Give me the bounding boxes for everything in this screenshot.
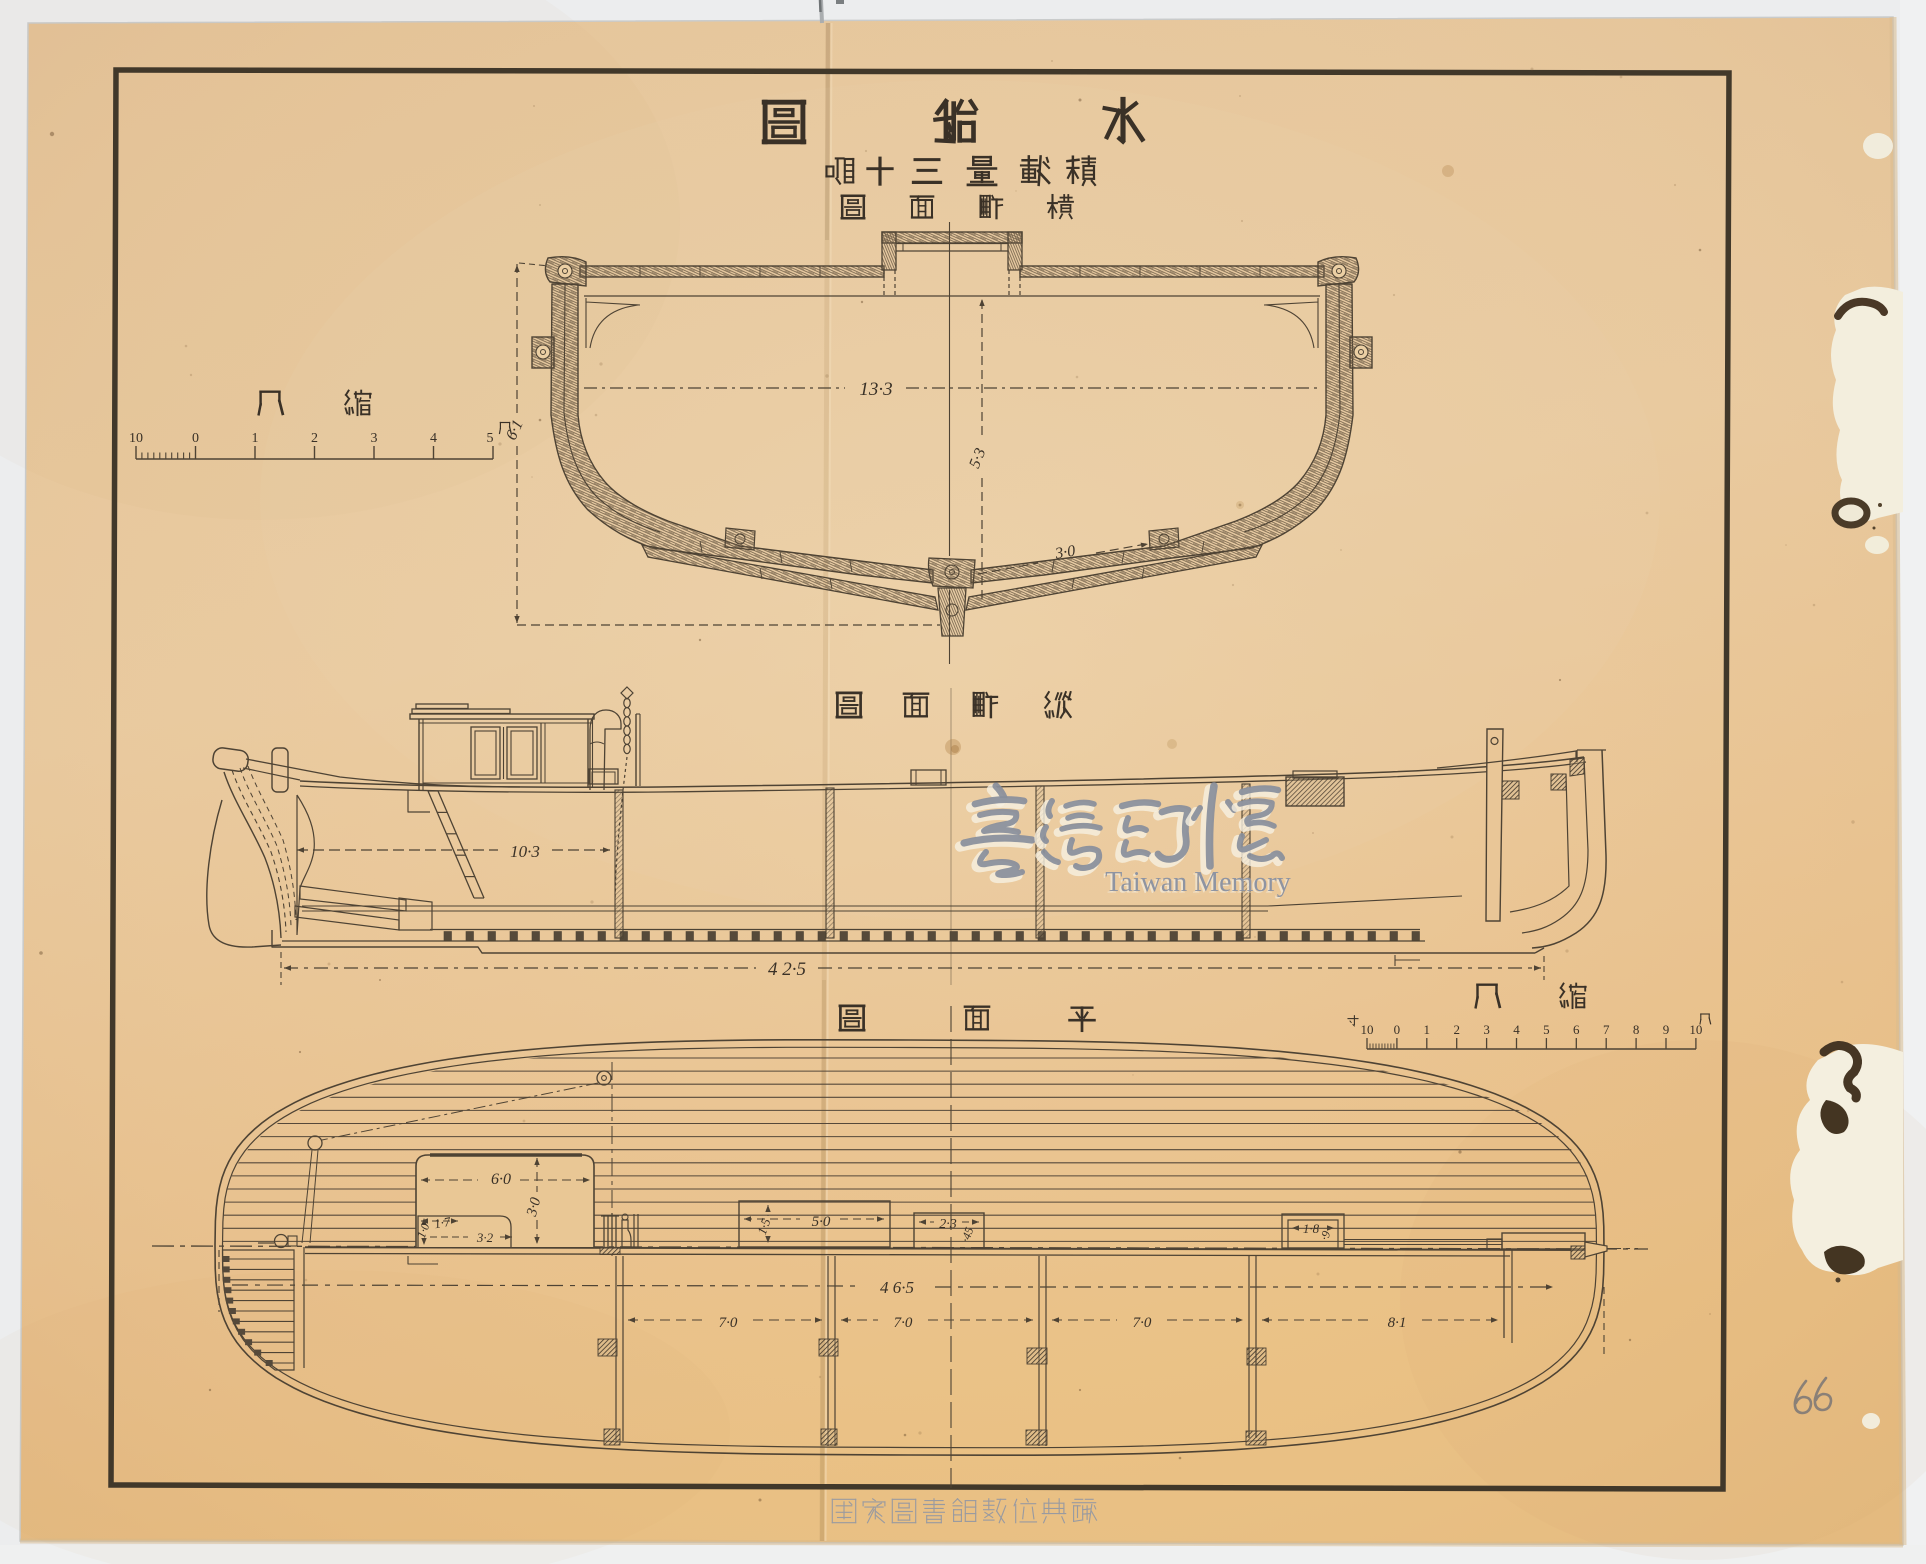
svg-text:3·0: 3·0 — [1053, 543, 1076, 563]
svg-text:4: 4 — [1513, 1022, 1520, 1037]
svg-text:3: 3 — [371, 431, 378, 446]
svg-text:10: 10 — [129, 431, 143, 446]
svg-text:2: 2 — [1453, 1022, 1460, 1037]
svg-text:4: 4 — [430, 431, 437, 446]
svg-text:3: 3 — [1483, 1022, 1490, 1037]
svg-text:7·0: 7·0 — [719, 1315, 738, 1331]
svg-text:8: 8 — [1633, 1022, 1640, 1037]
svg-text:0: 0 — [192, 431, 199, 446]
svg-text:6: 6 — [1573, 1022, 1580, 1037]
svg-text:5·0: 5·0 — [812, 1214, 831, 1230]
svg-text:9: 9 — [1663, 1022, 1670, 1037]
svg-text:2·3: 2·3 — [939, 1217, 957, 1232]
svg-text:5: 5 — [1543, 1022, 1550, 1037]
svg-text:2: 2 — [311, 431, 318, 446]
svg-text:1·8: 1·8 — [1303, 1221, 1320, 1236]
svg-text:8·1: 8·1 — [1388, 1315, 1407, 1331]
svg-text:3·2: 3·2 — [476, 1230, 494, 1245]
svg-text:6·0: 6·0 — [491, 1171, 511, 1188]
svg-text:7: 7 — [1603, 1022, 1610, 1037]
svg-text:Taiwan Memory: Taiwan Memory — [1105, 867, 1290, 898]
svg-text:7·0: 7·0 — [1133, 1315, 1152, 1331]
svg-text:4 6·5: 4 6·5 — [880, 1278, 914, 1297]
svg-text:10·3: 10·3 — [510, 842, 540, 861]
svg-text:1·7: 1·7 — [433, 1214, 452, 1232]
svg-text:0: 0 — [1394, 1022, 1401, 1037]
svg-text:4 2·5: 4 2·5 — [768, 959, 806, 980]
svg-text:5: 5 — [487, 431, 494, 446]
svg-text:13·3: 13·3 — [859, 379, 892, 400]
svg-text:1: 1 — [252, 431, 259, 446]
svg-text:7·0: 7·0 — [894, 1315, 913, 1331]
svg-text:10: 10 — [1361, 1022, 1374, 1037]
svg-text:1: 1 — [1424, 1022, 1431, 1037]
